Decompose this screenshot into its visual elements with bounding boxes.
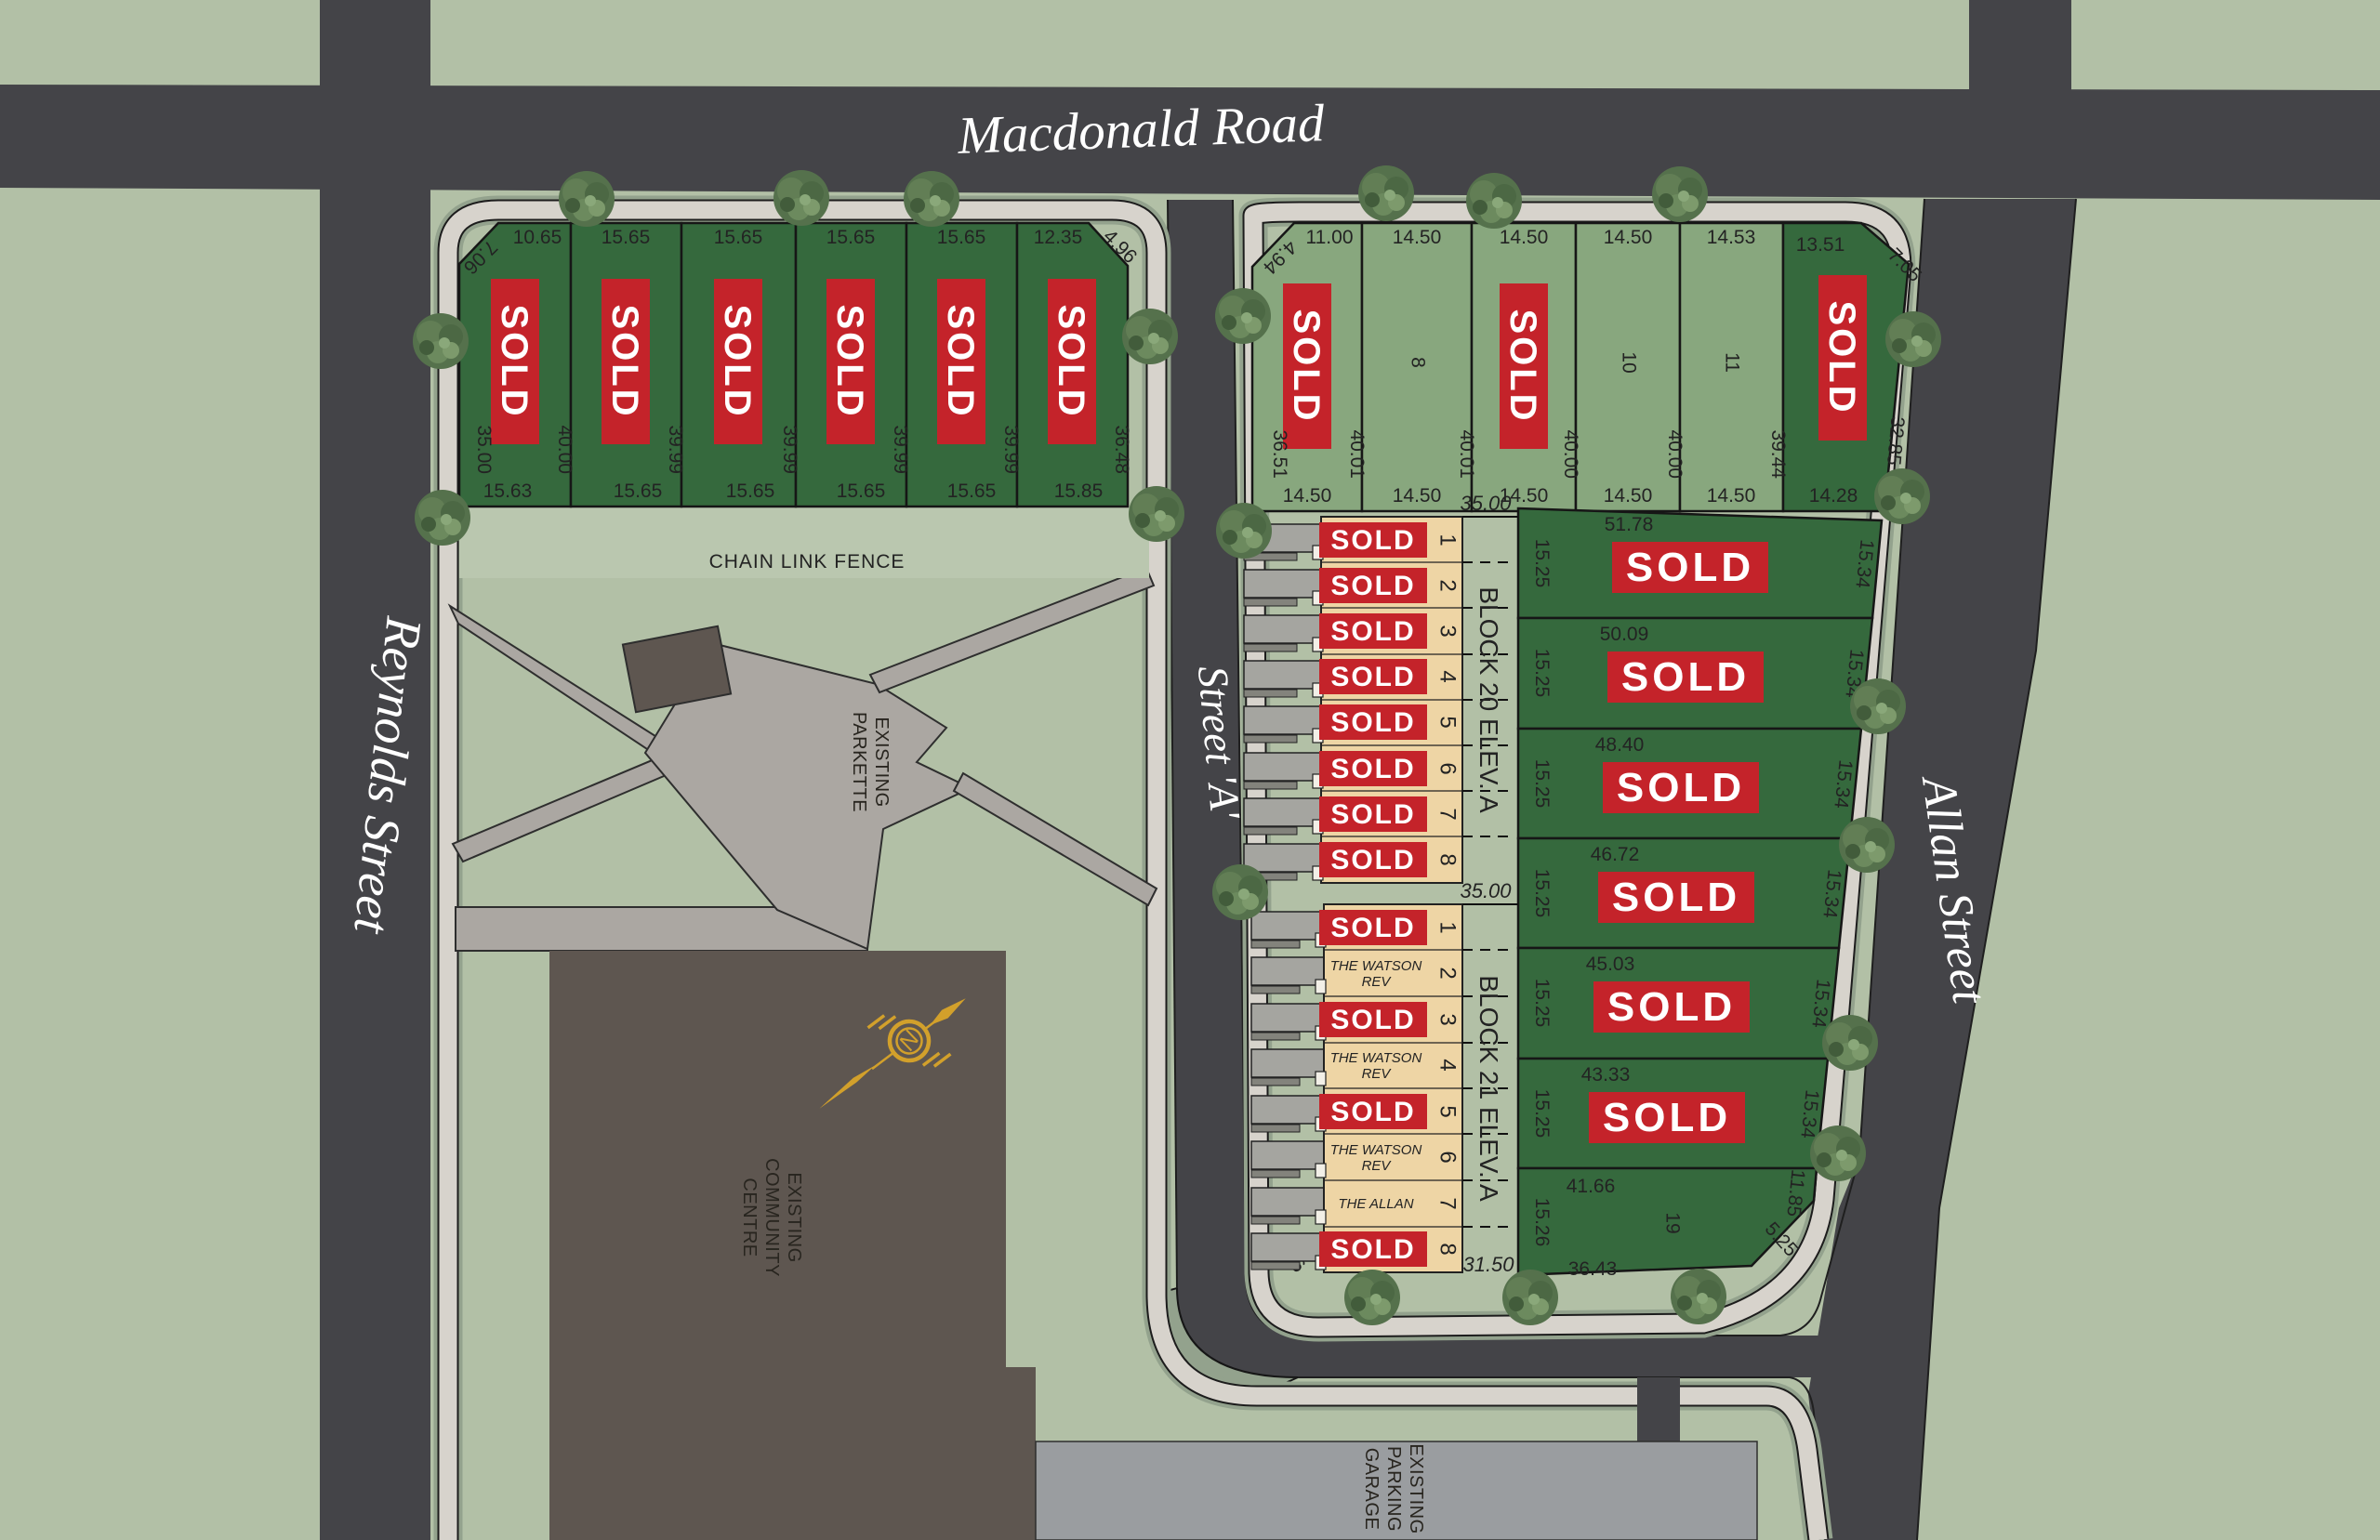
svg-text:8: 8 bbox=[1435, 853, 1461, 865]
svg-text:12.35: 12.35 bbox=[1034, 227, 1083, 248]
svg-text:14.50: 14.50 bbox=[1393, 227, 1442, 248]
svg-text:41.66: 41.66 bbox=[1567, 1176, 1616, 1197]
svg-text:3: 3 bbox=[1435, 625, 1461, 637]
svg-text:15.65: 15.65 bbox=[826, 227, 876, 248]
svg-text:1: 1 bbox=[1435, 533, 1461, 546]
svg-text:40.00: 40.00 bbox=[1560, 429, 1581, 479]
svg-text:8: 8 bbox=[1435, 1243, 1461, 1255]
svg-text:15.65: 15.65 bbox=[937, 227, 986, 248]
svg-text:CENTRE: CENTRE bbox=[739, 1178, 760, 1257]
svg-text:PARKETTE: PARKETTE bbox=[849, 712, 869, 812]
svg-text:15.65: 15.65 bbox=[714, 227, 763, 248]
svg-text:14.50: 14.50 bbox=[1604, 485, 1653, 507]
svg-text:SOLD: SOLD bbox=[717, 304, 758, 418]
svg-text:SOLD: SOLD bbox=[1821, 300, 1862, 415]
svg-text:35.00: 35.00 bbox=[1460, 492, 1512, 515]
svg-text:SOLD: SOLD bbox=[1051, 304, 1091, 418]
svg-text:32.85: 32.85 bbox=[1883, 415, 1908, 466]
svg-text:40.01: 40.01 bbox=[1456, 429, 1477, 479]
svg-text:15.25: 15.25 bbox=[1531, 649, 1553, 698]
svg-text:BLOCK 20 ELEV. A: BLOCK 20 ELEV. A bbox=[1474, 586, 1503, 813]
svg-text:11: 11 bbox=[1721, 352, 1742, 373]
svg-text:39.44: 39.44 bbox=[1767, 429, 1789, 479]
svg-text:15.65: 15.65 bbox=[614, 480, 663, 502]
svg-text:THE ALLAN: THE ALLAN bbox=[1338, 1196, 1413, 1212]
svg-text:THE WATSON: THE WATSON bbox=[1330, 958, 1422, 974]
svg-text:SOLD: SOLD bbox=[940, 304, 981, 418]
svg-text:48.40: 48.40 bbox=[1595, 734, 1645, 756]
svg-text:13.51: 13.51 bbox=[1796, 234, 1845, 256]
svg-text:3: 3 bbox=[1435, 1013, 1461, 1025]
svg-text:SOLD: SOLD bbox=[1603, 1095, 1731, 1140]
svg-text:36.51: 36.51 bbox=[1269, 429, 1290, 479]
svg-text:15.65: 15.65 bbox=[602, 227, 651, 248]
svg-text:SOLD: SOLD bbox=[1330, 1234, 1415, 1265]
svg-text:REV: REV bbox=[1362, 1066, 1393, 1082]
svg-text:14.50: 14.50 bbox=[1604, 227, 1653, 248]
svg-text:2: 2 bbox=[1435, 579, 1461, 591]
svg-text:GARAGE: GARAGE bbox=[1361, 1448, 1382, 1531]
svg-text:35.00: 35.00 bbox=[473, 425, 495, 474]
svg-text:15.63: 15.63 bbox=[483, 480, 533, 502]
svg-text:THE WATSON: THE WATSON bbox=[1330, 1050, 1422, 1066]
svg-text:39.99: 39.99 bbox=[1000, 425, 1022, 474]
svg-text:39.99: 39.99 bbox=[665, 425, 686, 474]
svg-text:CHAIN LINK FENCE: CHAIN LINK FENCE bbox=[709, 551, 906, 573]
svg-text:50.09: 50.09 bbox=[1600, 624, 1649, 645]
svg-text:15.65: 15.65 bbox=[726, 480, 775, 502]
svg-text:36.48: 36.48 bbox=[1111, 425, 1132, 474]
svg-text:SOLD: SOLD bbox=[1286, 309, 1327, 423]
svg-text:4: 4 bbox=[1435, 1059, 1461, 1071]
svg-text:43.33: 43.33 bbox=[1581, 1064, 1631, 1086]
svg-text:36.43: 36.43 bbox=[1568, 1258, 1618, 1280]
svg-text:EXISTING: EXISTING bbox=[1406, 1443, 1426, 1533]
svg-text:5: 5 bbox=[1435, 716, 1461, 728]
svg-text:15.25: 15.25 bbox=[1531, 869, 1553, 918]
svg-text:SOLD: SOLD bbox=[829, 304, 870, 418]
svg-text:14.50: 14.50 bbox=[1393, 485, 1442, 507]
svg-text:SOLD: SOLD bbox=[1330, 616, 1415, 647]
svg-text:15.25: 15.25 bbox=[1531, 759, 1553, 809]
svg-text:EXISTING: EXISTING bbox=[784, 1172, 804, 1262]
svg-text:SOLD: SOLD bbox=[1330, 571, 1415, 601]
svg-text:14.50: 14.50 bbox=[1283, 485, 1332, 507]
svg-text:19: 19 bbox=[1661, 1212, 1683, 1233]
svg-text:31.50: 31.50 bbox=[1462, 1253, 1514, 1276]
svg-text:6: 6 bbox=[1435, 1151, 1461, 1163]
svg-text:7: 7 bbox=[1435, 1197, 1461, 1209]
svg-text:8: 8 bbox=[1407, 357, 1428, 368]
svg-text:SOLD: SOLD bbox=[494, 304, 535, 418]
svg-text:40.00: 40.00 bbox=[1664, 429, 1686, 479]
svg-text:2: 2 bbox=[1435, 967, 1461, 979]
svg-text:10.65: 10.65 bbox=[513, 227, 562, 248]
svg-text:11.00: 11.00 bbox=[1306, 227, 1354, 248]
svg-text:15.85: 15.85 bbox=[1054, 480, 1104, 502]
svg-text:51.78: 51.78 bbox=[1605, 514, 1654, 535]
svg-text:EXISTING: EXISTING bbox=[871, 717, 892, 807]
svg-text:SOLD: SOLD bbox=[1330, 799, 1415, 830]
svg-text:15.25: 15.25 bbox=[1531, 979, 1553, 1028]
svg-text:14.28: 14.28 bbox=[1809, 485, 1858, 507]
svg-text:SOLD: SOLD bbox=[1617, 765, 1745, 810]
svg-text:THE WATSON: THE WATSON bbox=[1330, 1142, 1422, 1158]
svg-text:1: 1 bbox=[1435, 921, 1461, 933]
svg-text:SOLD: SOLD bbox=[1607, 984, 1736, 1030]
svg-text:SOLD: SOLD bbox=[1502, 309, 1543, 423]
svg-text:14.50: 14.50 bbox=[1500, 227, 1549, 248]
svg-text:SOLD: SOLD bbox=[1330, 662, 1415, 692]
svg-text:COMMUNITY: COMMUNITY bbox=[761, 1158, 782, 1277]
svg-text:15.65: 15.65 bbox=[837, 480, 886, 502]
svg-text:REV: REV bbox=[1362, 974, 1393, 990]
svg-text:SOLD: SOLD bbox=[604, 304, 645, 418]
svg-text:35.00: 35.00 bbox=[1460, 879, 1512, 902]
svg-text:39.99: 39.99 bbox=[779, 425, 800, 474]
svg-text:14.53: 14.53 bbox=[1707, 227, 1756, 248]
svg-text:5: 5 bbox=[1435, 1105, 1461, 1117]
svg-text:15.25: 15.25 bbox=[1531, 539, 1553, 588]
svg-text:SOLD: SOLD bbox=[1330, 913, 1415, 943]
svg-text:SOLD: SOLD bbox=[1612, 875, 1740, 920]
svg-text:SOLD: SOLD bbox=[1330, 707, 1415, 738]
svg-text:39.99: 39.99 bbox=[890, 425, 911, 474]
svg-text:10: 10 bbox=[1618, 351, 1639, 373]
svg-text:7: 7 bbox=[1435, 808, 1461, 820]
svg-text:40.00: 40.00 bbox=[554, 425, 575, 474]
svg-text:15.65: 15.65 bbox=[947, 480, 997, 502]
svg-text:SOLD: SOLD bbox=[1626, 545, 1754, 590]
svg-text:40.01: 40.01 bbox=[1346, 429, 1368, 479]
svg-text:SOLD: SOLD bbox=[1330, 1005, 1415, 1035]
svg-text:SOLD: SOLD bbox=[1621, 654, 1750, 700]
svg-text:PARKING: PARKING bbox=[1383, 1446, 1404, 1532]
svg-text:SOLD: SOLD bbox=[1330, 845, 1415, 875]
svg-text:46.72: 46.72 bbox=[1591, 844, 1640, 865]
svg-text:REV: REV bbox=[1362, 1158, 1393, 1174]
svg-text:SOLD: SOLD bbox=[1330, 525, 1415, 556]
svg-text:BLOCK 21 ELEV. A: BLOCK 21 ELEV. A bbox=[1474, 975, 1503, 1202]
svg-text:SOLD: SOLD bbox=[1330, 1097, 1415, 1127]
svg-text:14.50: 14.50 bbox=[1707, 485, 1756, 507]
svg-text:6: 6 bbox=[1435, 762, 1461, 774]
svg-text:15.26: 15.26 bbox=[1531, 1198, 1553, 1247]
svg-text:SOLD: SOLD bbox=[1330, 754, 1415, 784]
svg-text:15.25: 15.25 bbox=[1531, 1089, 1553, 1139]
svg-text:45.03: 45.03 bbox=[1586, 954, 1635, 975]
svg-text:4: 4 bbox=[1435, 670, 1461, 682]
